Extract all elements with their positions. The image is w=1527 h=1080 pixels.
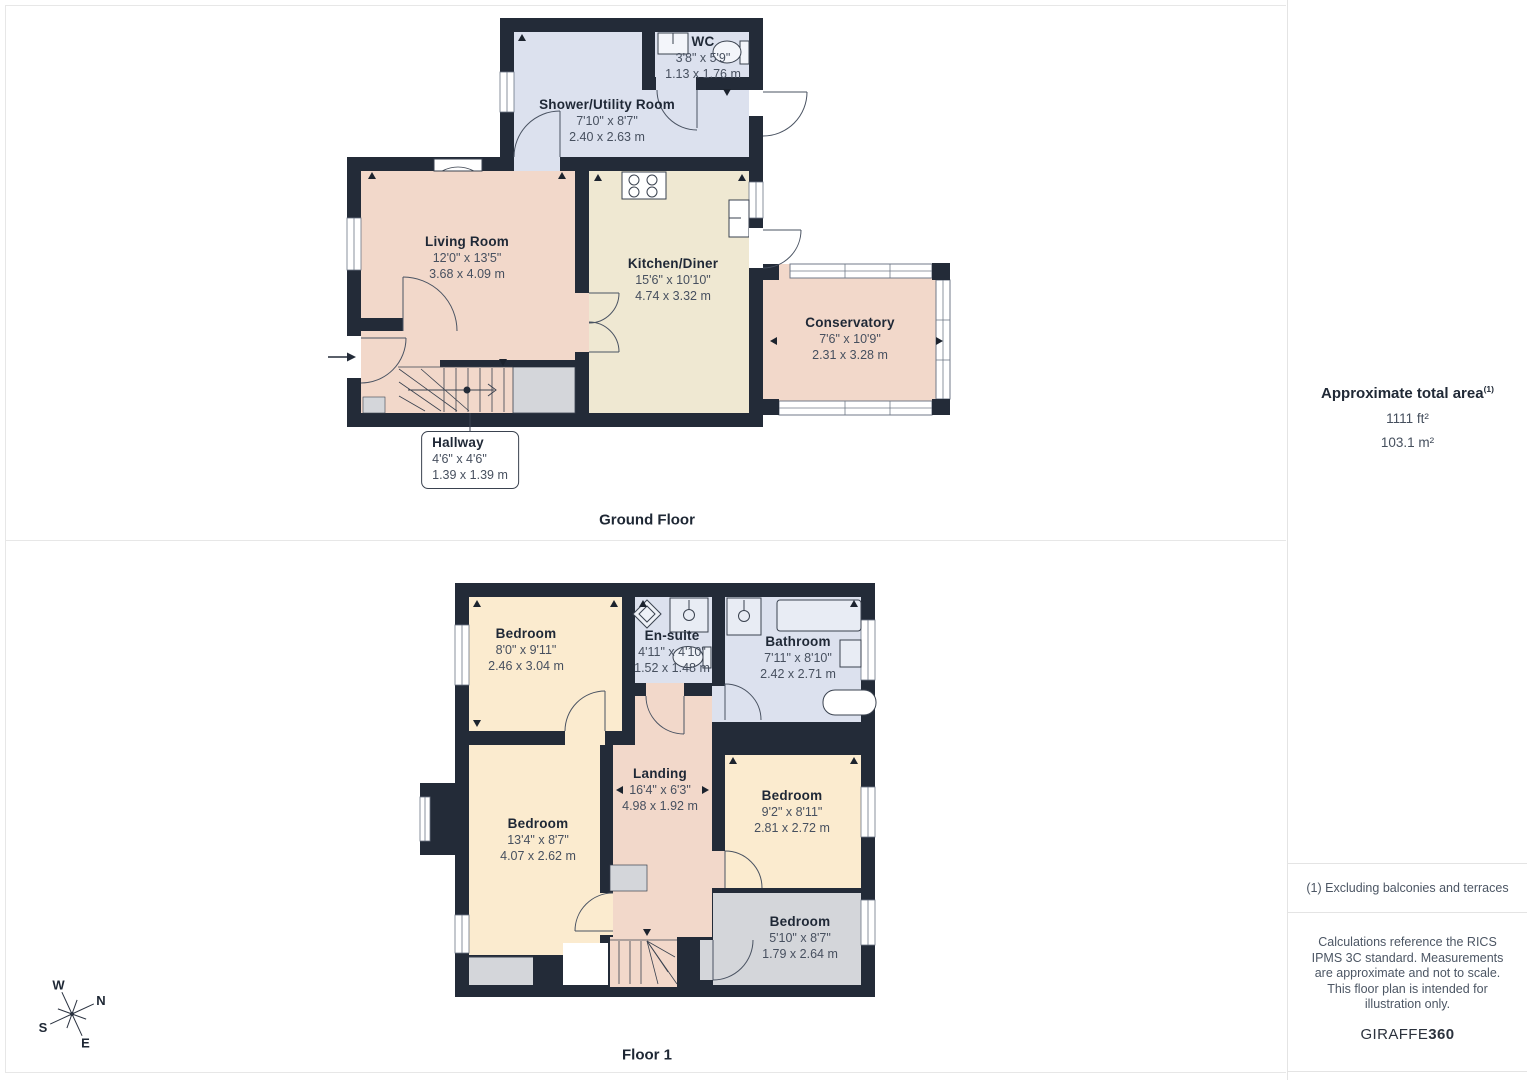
- room-dims-metric: 2.46 x 3.04 m: [488, 659, 564, 675]
- compass-south-label: S: [39, 1020, 48, 1035]
- disclaimer-section: Calculations reference the RICS IPMS 3C …: [1288, 913, 1527, 1072]
- hob-icon: [622, 172, 666, 199]
- room-name: WC: [665, 34, 741, 49]
- room-dims-imperial: 16'4" x 6'3": [622, 783, 698, 799]
- room-name: Hallway: [432, 435, 508, 450]
- room-dims-metric: 1.13 x 1.76 m: [665, 67, 741, 83]
- room-dims-imperial: 5'10" x 8'7": [762, 931, 838, 947]
- stairwell-void: [563, 943, 608, 985]
- room-label-bedroom-1: Bedroom 8'0" x 9'11" 2.46 x 3.04 m: [488, 626, 564, 674]
- room-name: En-suite: [634, 628, 710, 643]
- compass-north-label: N: [96, 993, 105, 1008]
- room-dims-imperial: 15'6" x 10'10": [628, 273, 718, 289]
- room-dims-metric: 2.81 x 2.72 m: [754, 821, 830, 837]
- area-imperial-value: 1111 ft²: [1288, 411, 1527, 426]
- room-name: Bedroom: [488, 626, 564, 641]
- room-dims-metric: 4.74 x 3.32 m: [628, 289, 718, 305]
- footnote-text: (1) Excluding balconies and terraces: [1306, 881, 1508, 895]
- room-label-bathroom: Bathroom 7'11" x 8'10" 2.42 x 2.71 m: [760, 634, 836, 682]
- stair-direction-dot: [464, 387, 471, 394]
- room-dims-metric: 1.79 x 2.64 m: [762, 947, 838, 963]
- ground-floor-title: Ground Floor: [599, 512, 695, 529]
- room-dims-metric: 3.68 x 4.09 m: [425, 267, 509, 283]
- room-name: Bedroom: [754, 788, 830, 803]
- room-label-ensuite: En-suite 4'11" x 4'10" 1.52 x 1.48 m: [634, 628, 710, 676]
- room-name: Living Room: [425, 234, 509, 249]
- room-name: Bathroom: [760, 634, 836, 649]
- room-name: Bedroom: [762, 914, 838, 929]
- area-metric-value: 103.1 m²: [1288, 435, 1527, 450]
- room-dims-metric: 1.52 x 1.48 m: [634, 661, 710, 677]
- compass-east-label: E: [81, 1036, 90, 1051]
- compass-west-label: W: [52, 978, 65, 993]
- brand-number: 360: [1428, 1026, 1454, 1043]
- disclaimer-text: Calculations reference the RICS IPMS 3C …: [1312, 935, 1504, 1013]
- room-dims-imperial: 8'0" x 9'11": [488, 643, 564, 659]
- room-label-bedroom-2: Bedroom 13'4" x 8'7" 4.07 x 2.62 m: [500, 816, 576, 864]
- room-dims-metric: 4.07 x 2.62 m: [500, 849, 576, 865]
- area-summary-section: Approximate total area(1) 1111 ft² 103.1…: [1288, 0, 1527, 864]
- brand-name: GIRAFFE: [1360, 1026, 1428, 1043]
- bathtub-icon: [823, 690, 876, 715]
- room-dims-metric: 1.39 x 1.39 m: [432, 468, 508, 484]
- room-label-bedroom-3: Bedroom 9'2" x 8'11" 2.81 x 2.72 m: [754, 788, 830, 836]
- room-name: Shower/Utility Room: [539, 97, 675, 112]
- room-bedroom-left: [455, 745, 608, 985]
- room-dims-imperial: 7'11" x 8'10": [760, 651, 836, 667]
- room-label-hallway: Hallway 4'6" x 4'6" 1.39 x 1.39 m: [421, 431, 519, 489]
- footnote-section: (1) Excluding balconies and terraces: [1288, 864, 1527, 913]
- room-label-living-room: Living Room 12'0" x 13'5" 3.68 x 4.09 m: [425, 234, 509, 282]
- floor1-title: Floor 1: [622, 1047, 672, 1064]
- room-label-wc: WC 3'8" x 5'9" 1.13 x 1.76 m: [665, 34, 741, 82]
- room-dims-imperial: 13'4" x 8'7": [500, 833, 576, 849]
- compass-rose: N E S W: [22, 964, 122, 1064]
- room-dims-imperial: 4'11" x 4'10": [634, 645, 710, 661]
- room-dims-imperial: 7'10" x 8'7": [539, 114, 675, 130]
- footnote-marker: (1): [1484, 384, 1494, 394]
- room-dims-imperial: 12'0" x 13'5": [425, 251, 509, 267]
- room-dims-imperial: 7'6" x 10'9": [805, 332, 894, 348]
- room-dims-metric: 4.98 x 1.92 m: [622, 799, 698, 815]
- room-label-landing: Landing 16'4" x 6'3" 4.98 x 1.92 m: [622, 766, 698, 814]
- room-label-bedroom-4: Bedroom 5'10" x 8'7" 1.79 x 2.64 m: [762, 914, 838, 962]
- room-dims-metric: 2.40 x 2.63 m: [539, 130, 675, 146]
- floorplan-page: WC 3'8" x 5'9" 1.13 x 1.76 m Shower/Util…: [0, 0, 1527, 1080]
- area-title: Approximate total area(1): [1288, 384, 1527, 402]
- cabinet-icon: [840, 640, 861, 667]
- cupboard: [610, 865, 647, 891]
- room-dims-imperial: 3'8" x 5'9": [665, 51, 741, 67]
- room-dims-metric: 2.31 x 3.28 m: [805, 348, 894, 364]
- fireplace-icon: [434, 159, 482, 171]
- room-name: Bedroom: [500, 816, 576, 831]
- room-label-shower-utility: Shower/Utility Room 7'10" x 8'7" 2.40 x …: [539, 97, 675, 145]
- room-dims-imperial: 4'6" x 4'6": [432, 452, 508, 468]
- kitchen-sink-icon: [729, 200, 749, 237]
- room-dims-imperial: 9'2" x 8'11": [754, 805, 830, 821]
- room-label-kitchen-diner: Kitchen/Diner 15'6" x 10'10" 4.74 x 3.32…: [628, 256, 718, 304]
- info-sidebar: Approximate total area(1) 1111 ft² 103.1…: [1287, 0, 1527, 1080]
- room-name: Kitchen/Diner: [628, 256, 718, 271]
- room-name: Landing: [622, 766, 698, 781]
- room-label-conservatory: Conservatory 7'6" x 10'9" 2.31 x 3.28 m: [805, 315, 894, 363]
- room-dims-metric: 2.42 x 2.71 m: [760, 667, 836, 683]
- shower-enclosure-icon: [777, 600, 861, 631]
- room-name: Conservatory: [805, 315, 894, 330]
- brand-logo: GIRAFFE360: [1288, 1026, 1527, 1043]
